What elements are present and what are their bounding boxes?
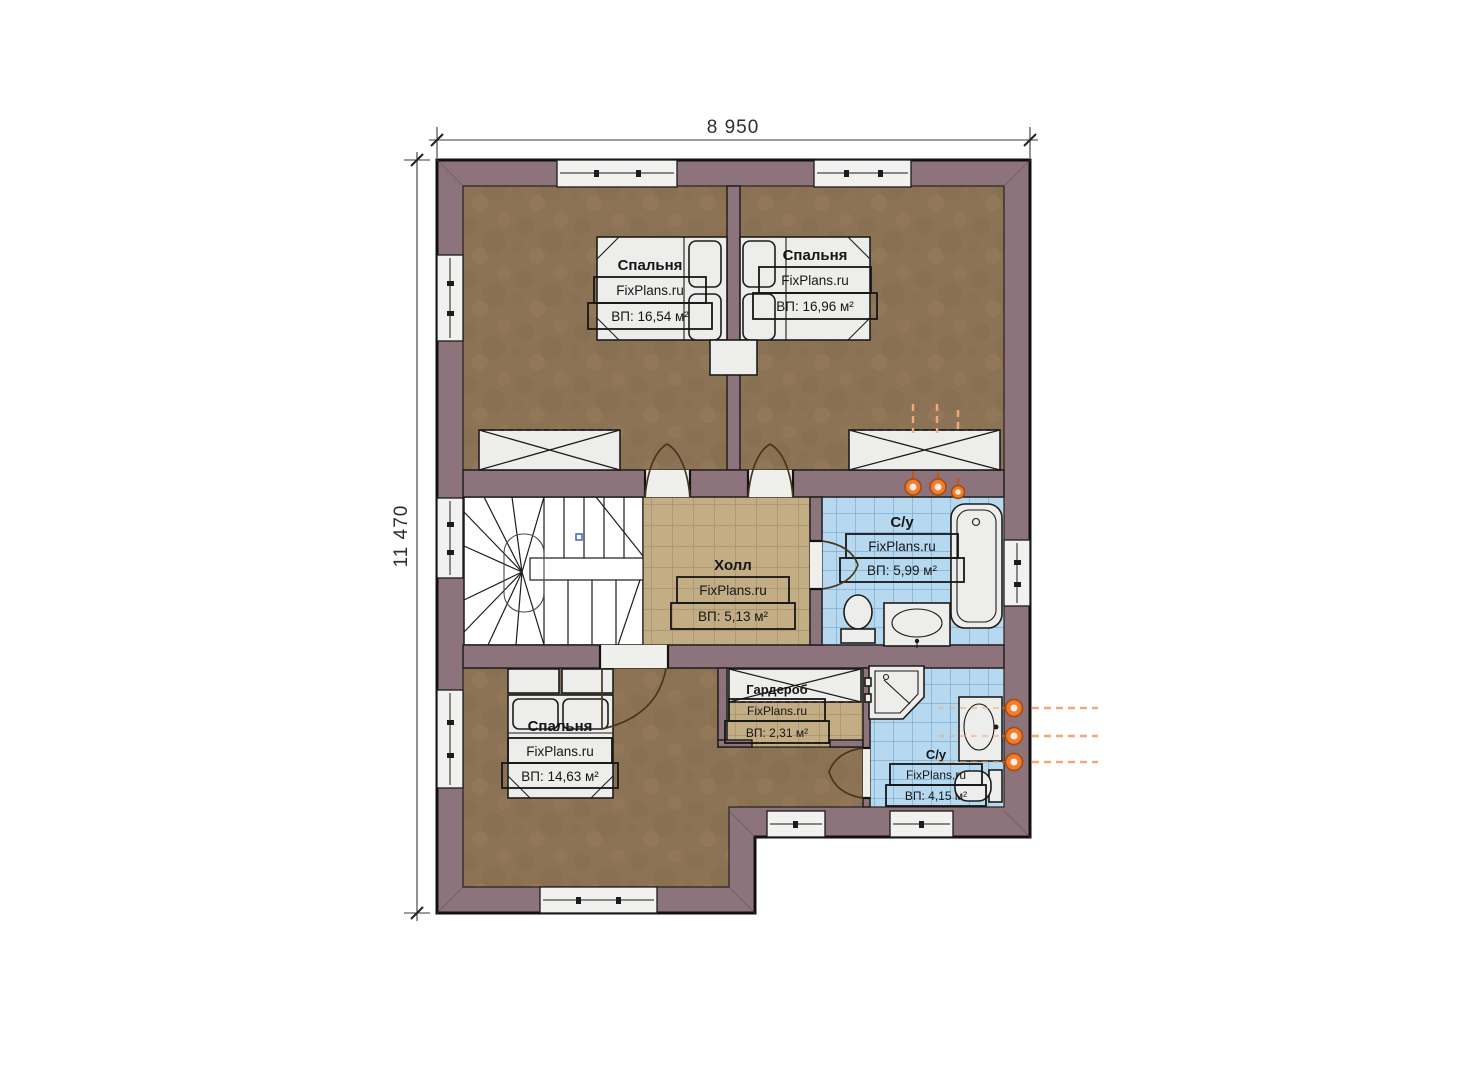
watermark-label: FixPlans.ru (526, 744, 594, 759)
wardrobe-icon (849, 430, 1000, 470)
wall-segment (863, 798, 870, 807)
room-name: С/у (926, 747, 947, 762)
toilet-icon (841, 595, 875, 643)
bathtub-icon (951, 504, 1002, 628)
wall-segment (463, 470, 645, 497)
room-area: ВП: 16,96 м² (776, 299, 854, 314)
room-area: ВП: 4,15 м² (905, 789, 967, 803)
watermark-label: FixPlans.ru (781, 273, 849, 288)
stair-landing-rail (530, 558, 643, 580)
window (437, 690, 463, 788)
wall-segment (690, 470, 748, 497)
room-name: Спальня (528, 718, 593, 735)
room-name: Гардероб (746, 682, 807, 697)
wall-segment (793, 470, 1004, 497)
dimension-width: 8 950 (429, 117, 1038, 158)
wall-stub (830, 740, 863, 747)
room-name: Холл (714, 557, 752, 574)
window (1004, 540, 1030, 606)
window (437, 498, 463, 578)
wall-segment (463, 645, 600, 668)
window (890, 811, 953, 837)
watermark-label: FixPlans.ru (747, 704, 807, 718)
floor-plan-page: 8 950 11 470 (0, 0, 1473, 1080)
room-area: ВП: 2,31 м² (746, 726, 808, 740)
room-name: Спальня (783, 247, 848, 264)
nightstand (710, 340, 757, 375)
room-area: ВП: 16,54 м² (611, 309, 689, 324)
dimension-height: 11 470 (391, 152, 430, 921)
watermark-label: FixPlans.ru (868, 539, 936, 554)
window (557, 160, 677, 187)
floor-plan: 8 950 11 470 (0, 0, 1473, 1080)
wardrobe-icon (479, 430, 620, 470)
window (437, 255, 463, 341)
dimension-height-label: 11 470 (391, 505, 412, 568)
room-name: Спальня (618, 257, 683, 274)
room-area: ВП: 5,99 м² (867, 563, 938, 578)
wall-segment (810, 497, 822, 541)
wall-segment (810, 589, 822, 645)
window (814, 160, 911, 187)
sink-icon (884, 603, 950, 648)
room-area: ВП: 14,63 м² (521, 769, 599, 784)
watermark-label: FixPlans.ru (699, 583, 767, 598)
watermark-label: FixPlans.ru (616, 283, 684, 298)
window (540, 887, 657, 913)
wall-segment (668, 645, 1004, 668)
sink-icon (959, 697, 1002, 761)
dimension-width-label: 8 950 (707, 117, 760, 138)
room-area: ВП: 5,13 м² (698, 609, 769, 624)
wall-bedroom-divider (727, 186, 740, 470)
room-name: С/у (890, 514, 914, 531)
watermark-label: FixPlans.ru (906, 768, 966, 782)
window (767, 811, 825, 837)
